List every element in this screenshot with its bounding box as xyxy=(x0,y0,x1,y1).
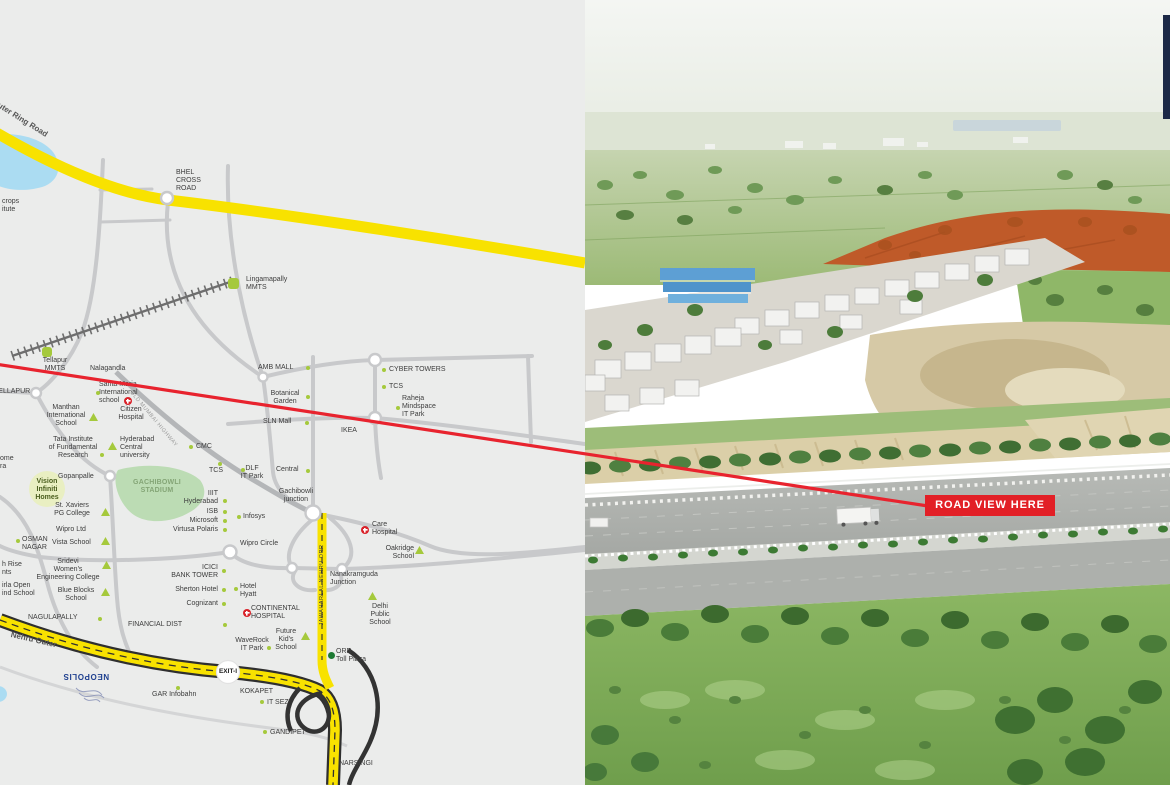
poi-dot xyxy=(222,602,226,606)
poi-label-cognizant: Cognizant xyxy=(186,600,218,608)
poi-label-vision-infiniti-homes: Vision Infiniti Homes xyxy=(35,478,58,502)
van xyxy=(590,518,608,527)
poi-label-fragment-crops-institute: crops itute xyxy=(2,198,19,214)
poi-label-sln-mall: SLN Mall xyxy=(263,418,291,426)
navy-edge-strip xyxy=(1163,15,1170,119)
poi-label-tellapur: TELLAPUR xyxy=(0,388,30,396)
poi-dot xyxy=(100,453,104,457)
road-view-tag: ROAD VIEW HERE xyxy=(925,495,1055,516)
poi-label-gachibowli-junction: Gachibowli junction xyxy=(279,488,313,504)
poi-dot xyxy=(98,617,102,621)
poi-label-st-xaviers: St. Xaviers PG College xyxy=(54,502,90,518)
poi-label-tcs-gachibowli: TCS xyxy=(209,467,223,475)
poi-label-hotel-hyatt: Hotel Hyatt xyxy=(240,583,256,599)
poi-label-tellapur-mmts: Tellapur MMTS xyxy=(43,357,68,373)
poi-label-bhel-cross-road: BHEL CROSS ROAD xyxy=(176,169,201,193)
poi-label-gopanpalle: Gopanpalle xyxy=(58,473,94,481)
poi-dot xyxy=(223,499,227,503)
poi-label-financial-district: FINANCIAL DIST xyxy=(128,621,182,629)
labour-camp-blue-sheds xyxy=(660,268,755,303)
poi-dot xyxy=(223,528,227,532)
distant-water xyxy=(953,120,1061,131)
poi-dot xyxy=(305,421,309,425)
schematic-map: Nehru Outer Ring Road Nehru Outer OLD MU… xyxy=(0,0,585,785)
poi-dot xyxy=(237,515,241,519)
poi-dot xyxy=(96,391,100,395)
poi-label-sridevi-college: Sridevi Women's Engineering College xyxy=(36,558,99,582)
poi-dot xyxy=(382,385,386,389)
poi-label-central: Central xyxy=(276,466,299,474)
poi-label-raheja-mindspace: Raheja Mindspace IT Park xyxy=(402,395,436,419)
poi-dot xyxy=(267,646,271,650)
poi-label-kokapet-it-sez: IT SEZ xyxy=(267,699,289,707)
poi-label-fragment-high-rise: h Rise nts xyxy=(2,561,22,577)
poi-dot xyxy=(263,730,267,734)
toll-plaza-marker xyxy=(328,652,335,659)
poi-label-gachibowli-stadium: GACHIBOWLI STADIUM xyxy=(133,479,181,495)
poi-label-gar-infobahn: GAR Infobahn xyxy=(152,691,196,699)
aerial-photo xyxy=(585,0,1170,785)
poi-label-amb-mall: AMB MALL xyxy=(258,364,293,372)
poi-dot xyxy=(306,395,310,399)
aerial-photo-graphics xyxy=(585,0,1170,785)
jnorr-road-label: JAWAHARLAL NEHRU ORR xyxy=(319,545,325,626)
poi-label-care-hospital: Care Hospital xyxy=(372,521,397,537)
poi-label-nanakramguda-junction: Nanakramguda Junction xyxy=(330,571,378,587)
poi-dot xyxy=(223,623,227,627)
poi-label-kokapet: KOKAPET xyxy=(240,688,273,696)
poi-label-narsingi: NARSINGI xyxy=(339,760,373,768)
poi-label-microsoft: Microsoft xyxy=(190,517,218,525)
hospital-icon xyxy=(243,609,251,617)
exit-1-label: EXIT-I xyxy=(219,668,237,675)
poi-label-virtusa-polaris: Virtusa Polaris xyxy=(173,526,218,534)
poi-label-blue-blocks-school: Blue Blocks School xyxy=(58,587,95,603)
hospital-icon xyxy=(124,397,132,405)
poi-label-manthan-school: Manthan International School xyxy=(47,404,86,428)
poi-label-oakridge-school: Oakridge School xyxy=(386,545,414,561)
poi-label-gandipet: GANDIPET xyxy=(270,729,306,737)
poi-dot xyxy=(222,588,226,592)
poi-dot xyxy=(306,366,310,370)
poi-dot xyxy=(223,510,227,514)
poi-label-fragment-home: ome ra xyxy=(0,455,14,471)
brochure-location-map: Nehru Outer Ring Road Nehru Outer OLD MU… xyxy=(0,0,1170,785)
poi-label-continental-hospital: CONTINENTAL HOSPITAL xyxy=(251,605,300,621)
poi-dot xyxy=(218,462,222,466)
poi-label-sherton-hotel: Sherton Hotel xyxy=(175,586,218,594)
poi-label-isb: ISB xyxy=(207,508,218,516)
poi-label-tcs-cyber: TCS xyxy=(389,383,403,391)
poi-dot xyxy=(16,539,20,543)
poi-label-botanical-garden: Botanical Garden xyxy=(271,390,300,406)
poi-dot xyxy=(241,468,245,472)
poi-label-cmc: CMC xyxy=(196,443,212,451)
poi-dot xyxy=(223,519,227,523)
poi-dot xyxy=(396,406,400,410)
poi-label-wipro-circle: Wipro Circle xyxy=(240,540,278,548)
poi-label-infosys: Infosys xyxy=(243,513,265,521)
poi-label-ikea: IKEA xyxy=(341,427,357,435)
poi-label-lingampally-mmts: Lingamapally MMTS xyxy=(246,276,287,292)
poi-label-nalagandla: Nalagandla xyxy=(90,365,125,373)
poi-label-fragment-birla-school: irla Open ind School xyxy=(2,582,35,598)
poi-dot xyxy=(260,700,264,704)
poi-label-iiit-hyderabad: IIIT Hyderabad xyxy=(184,490,218,506)
poi-label-nagulapally: NAGULAPALLY xyxy=(28,614,78,622)
poi-dot xyxy=(176,686,180,690)
poi-label-osman-nagar: OSMAN NAGAR xyxy=(22,536,48,552)
poi-label-icici-bank-tower: ICICI BANK TOWER xyxy=(171,564,218,580)
poi-dot xyxy=(382,368,386,372)
poi-label-hyderabad-central-university: Hyderabad Central university xyxy=(120,436,154,460)
poi-label-delhi-public-school: Delhi Public School xyxy=(369,603,390,627)
poi-label-future-kids-school: Future Kid's School xyxy=(275,628,296,652)
neopolis-label: NEOPOLIS xyxy=(63,672,109,681)
poi-dot xyxy=(306,469,310,473)
poi-dot xyxy=(189,445,193,449)
poi-dot xyxy=(234,587,238,591)
poi-label-cyber-towers: CYBER TOWERS xyxy=(389,366,446,374)
poi-label-tata-institute: Tata Institute of Fundamental Research xyxy=(49,436,98,460)
poi-label-orr-toll-plaza: ORR Toll Plaza xyxy=(336,648,366,664)
poi-label-vista-school: Vista School xyxy=(52,539,91,547)
poi-label-waverock-it-park: WaveRock IT Park xyxy=(235,637,269,653)
poi-dot xyxy=(222,569,226,573)
poi-label-wipro-ltd: Wipro Ltd xyxy=(56,526,86,534)
hospital-icon xyxy=(361,526,369,534)
